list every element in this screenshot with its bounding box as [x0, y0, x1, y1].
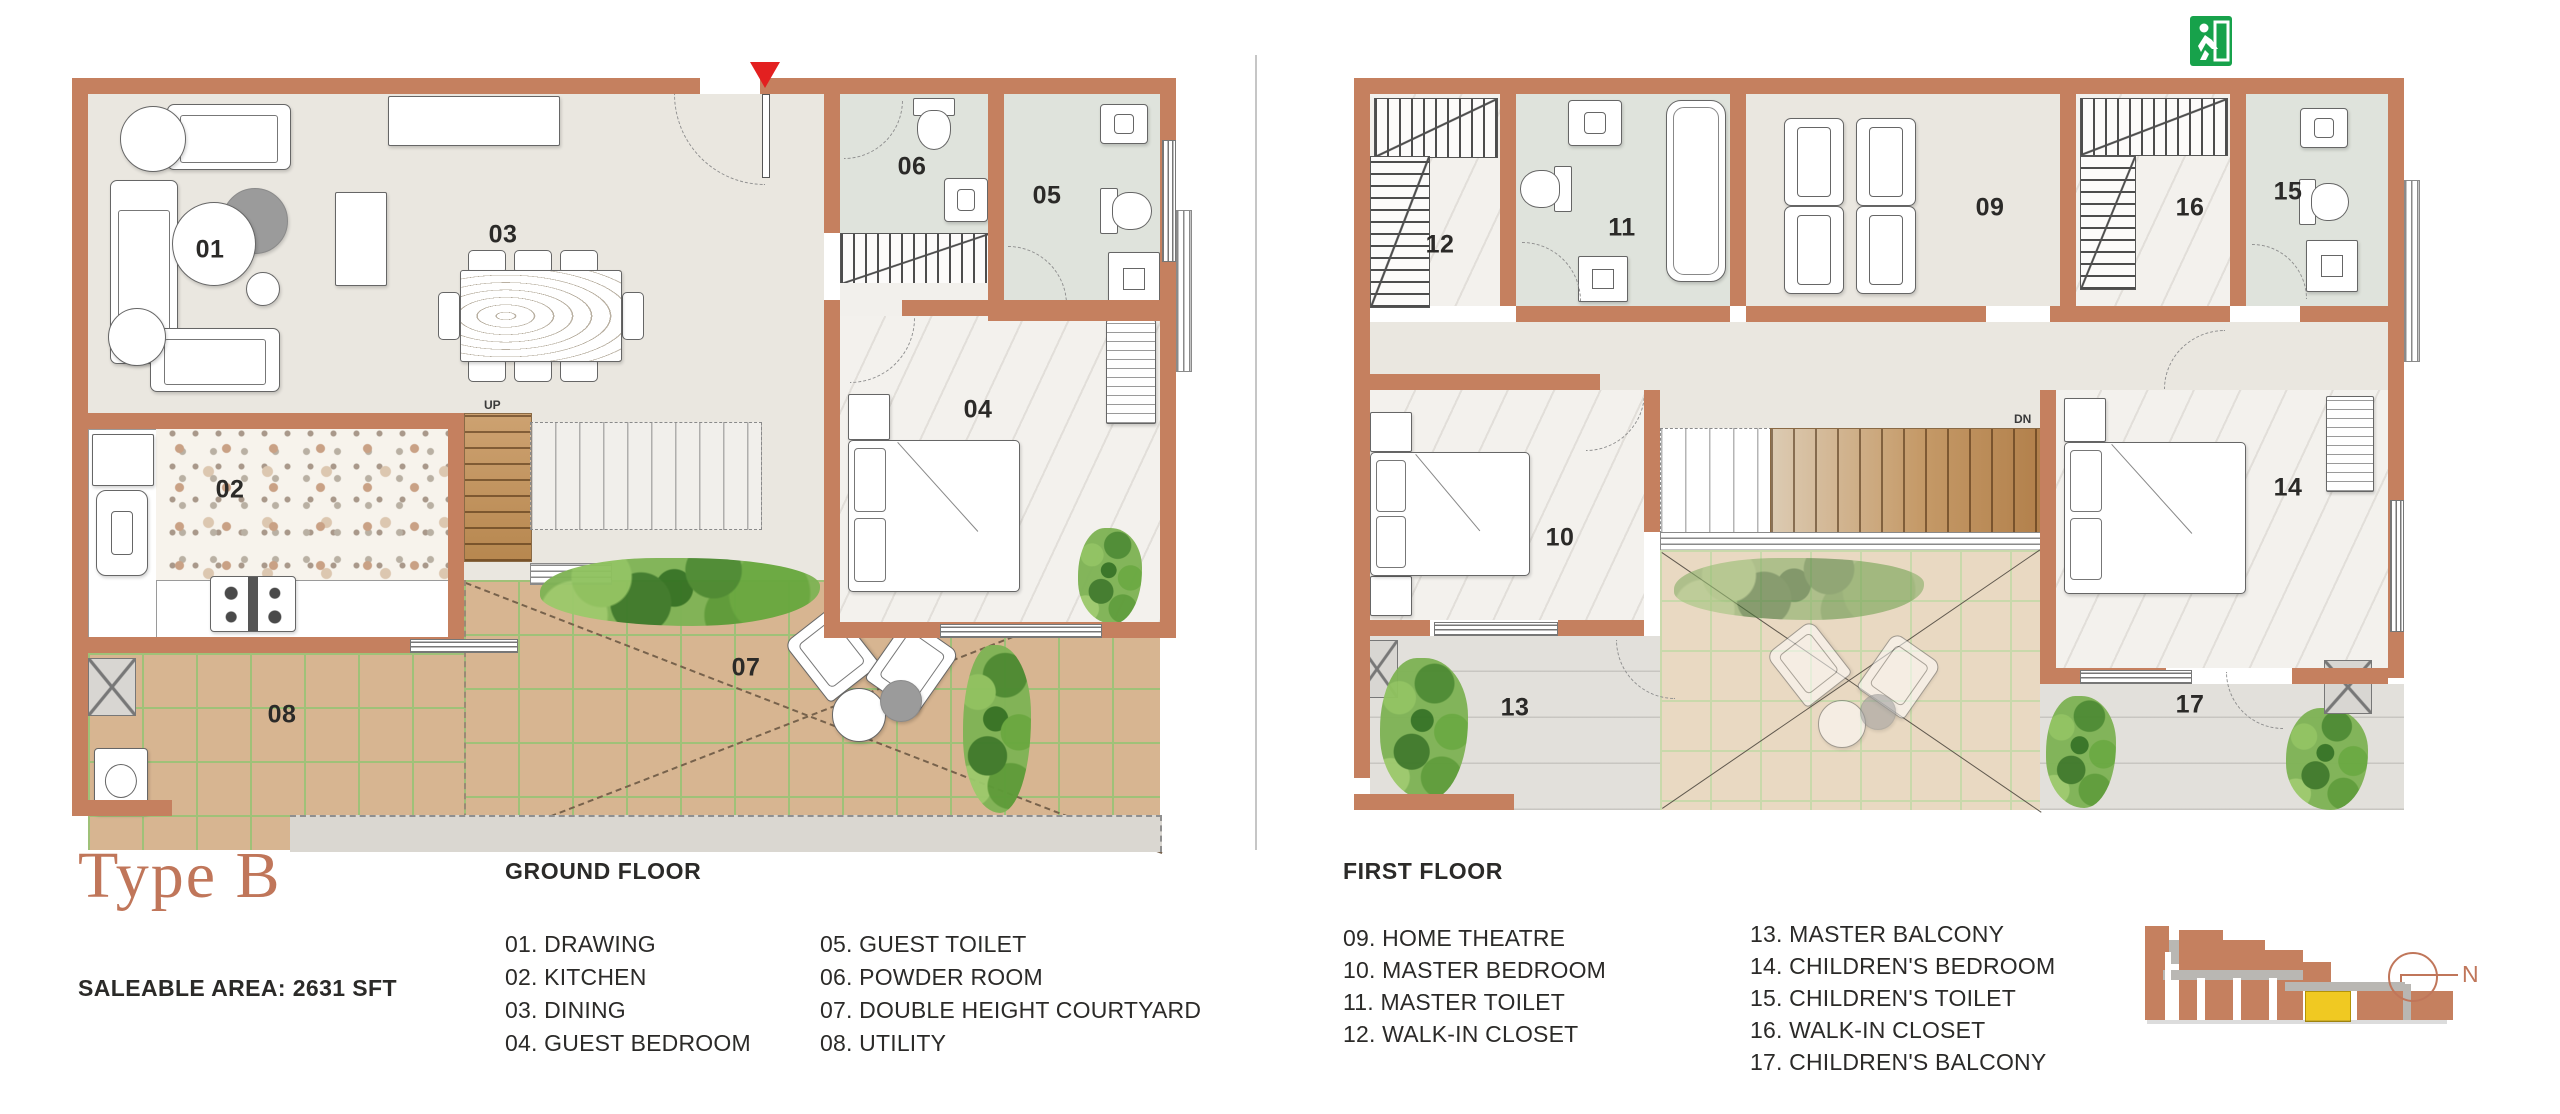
- elevation-block: [2223, 940, 2265, 1020]
- north-label: N: [2462, 961, 2479, 988]
- room-number-label: 03: [489, 221, 518, 250]
- room-number-label: 08: [268, 701, 297, 730]
- room-number-label: 01: [196, 236, 225, 265]
- legend-item: 16. WALK-IN CLOSET: [1750, 1014, 2055, 1046]
- legend-item: 14. CHILDREN'S BEDROOM: [1750, 950, 2055, 982]
- room-number-label: 09: [1976, 194, 2005, 223]
- first-floor-plan: DN: [1340, 60, 2460, 850]
- legend-item: 08. UTILITY: [820, 1027, 1201, 1060]
- first-floor-heading: FIRST FLOOR: [1343, 858, 1503, 885]
- elevation-gap: [2233, 978, 2241, 1020]
- north-tick: [2400, 974, 2402, 982]
- room-number-label: 04: [964, 396, 993, 425]
- legend-item: 12. WALK-IN CLOSET: [1343, 1018, 1606, 1050]
- first-legend-col1: 09. HOME THEATRE10. MASTER BEDROOM11. MA…: [1343, 922, 1606, 1050]
- legend-item: 17. CHILDREN'S BALCONY: [1750, 1046, 2055, 1078]
- legend-item: 04. GUEST BEDROOM: [505, 1027, 751, 1060]
- saleable-area: SALEABLE AREA: 2631 SFT: [78, 975, 397, 1002]
- room-number-label: 02: [216, 476, 245, 505]
- elevation-gap: [2269, 978, 2277, 1020]
- legend-item: 07. DOUBLE HEIGHT COURTYARD: [820, 994, 1201, 1027]
- floor-plan-sheet: UP: [0, 0, 2560, 1114]
- room-number-label: 16: [2176, 194, 2205, 223]
- first-legend-col2: 13. MASTER BALCONY14. CHILDREN'S BEDROOM…: [1750, 918, 2055, 1078]
- legend-item: 03. DINING: [505, 994, 751, 1027]
- ground-room-labels: 0102030405060708: [60, 60, 1190, 850]
- elevation-highlight-unit: [2305, 991, 2351, 1022]
- room-number-label: 10: [1546, 524, 1575, 553]
- elevation-gap: [2197, 978, 2205, 1020]
- room-number-label: 05: [1033, 182, 1062, 211]
- type-title: Type B: [78, 838, 282, 914]
- legend-item: 01. DRAWING: [505, 928, 751, 961]
- room-number-label: 12: [1426, 231, 1455, 260]
- room-number-label: 07: [732, 654, 761, 683]
- elevation-gap: [2165, 952, 2171, 1020]
- room-number-label: 14: [2274, 474, 2303, 503]
- plan-divider: [1255, 55, 1257, 850]
- legend-item: 02. KITCHEN: [505, 961, 751, 994]
- ground-floor-plan: UP: [60, 60, 1190, 850]
- legend-item: 05. GUEST TOILET: [820, 928, 1201, 961]
- legend-item: 06. POWDER ROOM: [820, 961, 1201, 994]
- elevation-band: [2285, 982, 2405, 991]
- room-number-label: 06: [898, 153, 927, 182]
- legend-item: 15. CHILDREN'S TOILET: [1750, 982, 2055, 1014]
- ground-legend-col1: 01. DRAWING02. KITCHEN03. DINING04. GUES…: [505, 928, 751, 1060]
- legend-item: 10. MASTER BEDROOM: [1343, 954, 1606, 986]
- ground-floor-heading: GROUND FLOOR: [505, 858, 701, 885]
- room-number-label: 17: [2176, 691, 2205, 720]
- legend-item: 11. MASTER TOILET: [1343, 986, 1606, 1018]
- legend-item: 09. HOME THEATRE: [1343, 922, 1606, 954]
- room-number-label: 11: [1608, 214, 1635, 243]
- north-line: [2400, 974, 2458, 976]
- ground-legend-col2: 05. GUEST TOILET06. POWDER ROOM07. DOUBL…: [820, 928, 1201, 1060]
- elevation-shadow: [2147, 1020, 2447, 1024]
- room-number-label: 13: [1501, 694, 1530, 723]
- north-icon: [2388, 952, 2438, 1002]
- first-room-labels: 091011121314151617: [1340, 60, 2460, 850]
- exit-sign-icon: [2190, 16, 2232, 66]
- room-number-label: 15: [2274, 178, 2303, 207]
- legend-item: 13. MASTER BALCONY: [1750, 918, 2055, 950]
